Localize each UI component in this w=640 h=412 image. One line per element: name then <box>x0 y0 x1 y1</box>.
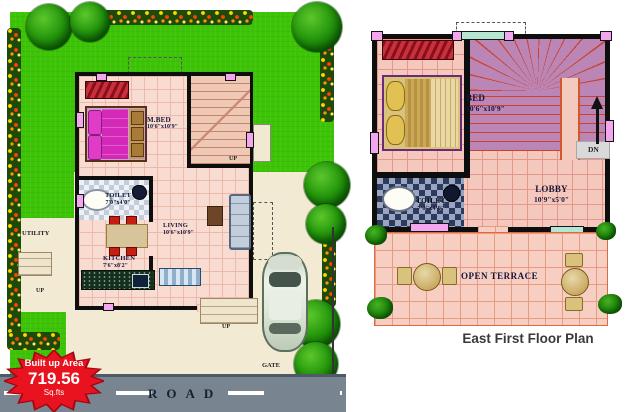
tree <box>306 204 346 244</box>
built-up-area-badge: Built up Area 719.56 Sq.fts <box>4 350 104 412</box>
room-dim: 10'6"x10'9" <box>163 230 194 237</box>
room-dim: 7'0"x4'0" <box>105 200 131 207</box>
badge-title: Built up Area <box>4 358 104 369</box>
wash-basin <box>132 185 147 200</box>
pillow <box>386 81 405 111</box>
room-dim: 7'6"x8'2" <box>103 263 135 270</box>
side-steps <box>18 252 52 276</box>
room-dim: 10'6"x10'9" <box>147 124 178 131</box>
dn-arrow-icon <box>591 96 603 109</box>
blanket <box>430 79 458 147</box>
side-box <box>253 124 271 162</box>
car-hood <box>268 256 302 270</box>
first-floor-plan: DN BED 10'6"x10'9" TOILET 7'0"x4'0" LOBB… <box>368 20 614 332</box>
tree <box>292 2 342 52</box>
car-roof <box>269 290 301 320</box>
badge-unit: Sq.fts <box>4 388 104 397</box>
window <box>371 31 383 41</box>
tree <box>70 2 110 42</box>
terrace-table <box>561 268 589 296</box>
window <box>600 31 612 41</box>
kitchen-sink <box>132 274 149 288</box>
room-label-mbed: M.BED 10'6"x10'9" <box>147 116 178 132</box>
terrace-chair <box>565 297 583 311</box>
shrub <box>598 294 622 314</box>
wardrobe <box>85 81 129 99</box>
room-name: BED <box>466 93 505 104</box>
shrub <box>596 222 616 240</box>
terrace-table <box>413 263 441 291</box>
room-name: OPEN TERRACE <box>461 271 538 282</box>
bed-furniture <box>382 75 462 151</box>
porch-steps <box>200 298 258 324</box>
room-name: LIVING <box>163 222 194 230</box>
flower-border-bottom-left <box>8 332 60 350</box>
window <box>76 112 84 128</box>
sitout-projection <box>253 202 273 260</box>
dn-arrow-stem <box>596 108 599 144</box>
flower-border-left <box>7 28 21 350</box>
bathtub <box>382 186 416 212</box>
shrub <box>367 297 393 319</box>
room-label-living: LIVING 10'6"x10'9" <box>163 222 194 237</box>
shrub <box>365 225 387 245</box>
dn-label: DN <box>588 145 599 154</box>
wall <box>149 176 153 222</box>
room-dim: 7'0"x4'0" <box>416 205 446 213</box>
staircase-winders <box>470 39 605 91</box>
room-name: LOBBY <box>534 184 569 195</box>
terrace-chair <box>442 267 457 285</box>
pillow <box>88 135 102 160</box>
window <box>504 31 514 41</box>
open-terrace: OPEN TERRACE <box>374 232 608 326</box>
room-dim: 10'9"x5'0" <box>534 195 569 204</box>
up-label-porch: UP <box>222 324 230 330</box>
window <box>452 31 462 41</box>
mattress <box>405 79 430 147</box>
terrace-label: OPEN TERRACE <box>461 271 538 282</box>
window <box>246 132 254 148</box>
badge-value: 719.56 <box>4 369 104 389</box>
window <box>103 303 114 311</box>
window <box>76 194 84 208</box>
pillow <box>386 115 405 145</box>
window <box>370 132 379 154</box>
utility-label: UTILITY <box>22 230 49 237</box>
wall <box>187 164 250 168</box>
room-name: KITCHEN <box>103 255 135 263</box>
room-dim: 10'6"x10'9" <box>466 104 505 113</box>
bedside-shelf <box>129 109 144 159</box>
tree <box>26 4 72 50</box>
road-label: ROAD <box>148 386 222 402</box>
plot-boundary-line <box>332 227 334 374</box>
coffee-table <box>207 206 223 226</box>
staircase-ground <box>191 76 250 164</box>
terrace-chair <box>565 253 583 267</box>
window <box>605 120 614 142</box>
gate-label: GATE <box>262 362 280 369</box>
pillow <box>88 110 102 135</box>
room-label-toilet-g: TOILET 7'0"x4'0" <box>105 192 131 207</box>
tree <box>304 162 350 208</box>
tv-unit <box>159 268 201 286</box>
dining-table <box>106 224 148 248</box>
kitchen-counter <box>81 270 155 290</box>
ground-floor-plot: M.BED 10'6"x10'9" UP TOILET 7'0"x4'0" <box>10 12 334 376</box>
ground-floor-house: M.BED 10'6"x10'9" UP TOILET 7'0"x4'0" <box>75 72 253 310</box>
car-rear-window <box>269 323 301 334</box>
car <box>262 252 308 352</box>
up-label-side: UP <box>36 288 44 294</box>
balcony-door-sill <box>460 31 506 40</box>
room-name: M.BED <box>147 116 178 124</box>
room-name: TOILET <box>105 192 131 200</box>
car-windshield <box>269 272 301 287</box>
bed-furniture <box>85 106 147 162</box>
wardrobe <box>382 40 454 60</box>
room-name: TOILET <box>416 196 446 205</box>
terrace-chair <box>397 267 412 285</box>
room-label-bed: BED 10'6"x10'9" <box>466 93 505 113</box>
plan-caption: East First Floor Plan <box>418 331 638 346</box>
room-label-lobby: LOBBY 10'9"x5'0" <box>534 184 569 204</box>
room-label-toilet-f: TOILET 7'0"x4'0" <box>416 196 446 213</box>
up-label-stairs: UP <box>229 156 237 162</box>
blanket <box>102 109 128 159</box>
window <box>96 73 107 81</box>
sofa <box>229 194 251 250</box>
flower-border-right-upper <box>320 42 334 122</box>
flower-border-top <box>88 10 253 25</box>
window <box>225 73 236 81</box>
floor-plan-image: M.BED 10'6"x10'9" UP TOILET 7'0"x4'0" <box>0 0 640 412</box>
room-label-kitchen: KITCHEN 7'6"x8'2" <box>103 255 135 270</box>
window <box>410 223 449 232</box>
